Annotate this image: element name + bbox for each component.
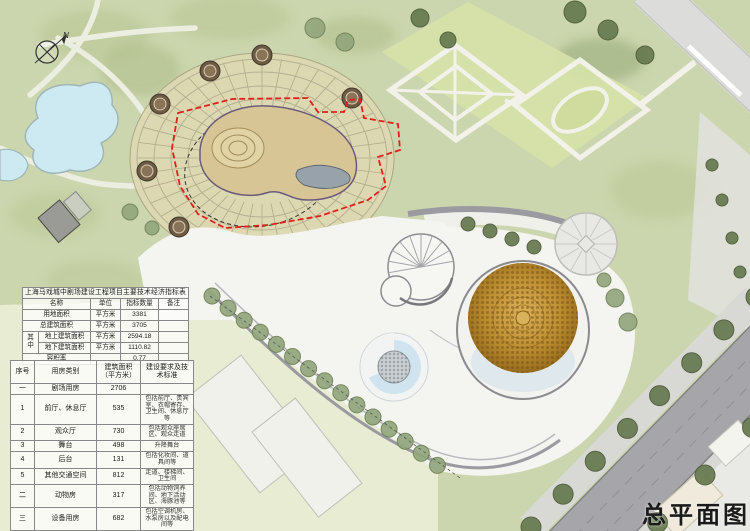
table-cell: 剧场用房 (35, 384, 97, 395)
table-cell: 地上建筑面积 (39, 331, 91, 342)
table-cell: 前厅、休息厅 (35, 395, 97, 425)
tree (145, 221, 159, 235)
tree (365, 409, 381, 425)
table-cell: 3381 (121, 310, 159, 321)
table-cell: 动物房 (35, 484, 97, 507)
table-cell: 平方米 (91, 310, 121, 321)
table-cell: 上海马戏城中剧场建设工程项目主要技术经济指标表 (23, 288, 189, 299)
table-cell: 其中 (23, 331, 39, 353)
tree (336, 33, 354, 51)
tree (305, 18, 325, 38)
tree (236, 312, 252, 328)
table-cell: 总建筑面积 (23, 320, 91, 331)
tree (397, 433, 413, 449)
table-cell: 平方米 (91, 320, 121, 331)
table-cell: 平方米 (91, 342, 121, 353)
table-cell: 2 (11, 424, 35, 440)
tree (714, 320, 734, 340)
tree (734, 266, 746, 278)
tree (706, 159, 718, 171)
tree (411, 9, 429, 27)
plan-title: 总平面图 (642, 495, 750, 530)
rooms-table: 序号用房类别建筑面积（平方米）建设要求及技术标准一剧场用房27061前厅、休息厅… (10, 360, 194, 531)
tree (597, 273, 611, 287)
table-cell: 4 (11, 452, 35, 468)
tree (505, 232, 519, 246)
table-cell: 包括空调机房、水泵房以及配电间等 (141, 508, 194, 531)
indicators-table: 上海马戏城中剧场建设工程项目主要技术经济指标表名称单位指标数量备注用地面积平方米… (22, 287, 189, 365)
tree (606, 289, 624, 307)
table-cell: 备注 (159, 299, 189, 310)
tree (617, 418, 637, 438)
table-cell: 序号 (11, 361, 35, 384)
tree (598, 20, 618, 40)
tree (440, 32, 456, 48)
table-cell (141, 384, 194, 395)
table-cell: 平方米 (91, 331, 121, 342)
table-cell: 535 (97, 395, 141, 425)
table-cell: 升降舞台 (141, 441, 194, 452)
table-cell: 3705 (121, 320, 159, 331)
table-cell: 317 (97, 484, 141, 507)
table-cell: 舞台 (35, 441, 97, 452)
table-cell (159, 342, 189, 353)
table-cell: 单位 (91, 299, 121, 310)
tree (650, 386, 670, 406)
tree (220, 300, 236, 316)
tree (695, 465, 715, 485)
table-cell: 二 (11, 484, 35, 507)
table-cell: 包括动物饲养间、地下活动区、海豚池等 (141, 484, 194, 507)
table-cell: 1 (11, 395, 35, 425)
tree (619, 313, 637, 331)
tree (461, 217, 475, 231)
table-cell: 走道、楼梯间、卫生间 (141, 468, 194, 484)
table-cell: 812 (97, 468, 141, 484)
table-cell: 498 (97, 441, 141, 452)
table-cell: 5 (11, 468, 35, 484)
table-cell: 地下建筑面积 (39, 342, 91, 353)
table-cell: 一 (11, 384, 35, 395)
table-cell: 包括前厅、贵宾室、衣帽寄存、卫生间、休息厅等 (141, 395, 194, 425)
table-cell (159, 331, 189, 342)
tree (585, 451, 605, 471)
table-cell: 730 (97, 424, 141, 440)
table-cell: 2594.18 (121, 331, 159, 342)
tree (527, 240, 541, 254)
compass-north-label: N (63, 31, 69, 40)
tree (716, 194, 728, 206)
table-cell: 指标数量 (121, 299, 159, 310)
tree (564, 1, 586, 23)
tree (553, 484, 573, 504)
table-cell (159, 310, 189, 321)
table-cell: 131 (97, 452, 141, 468)
golden-dome-building (457, 261, 589, 399)
tree (636, 46, 654, 64)
tree (333, 385, 349, 401)
table-cell: 682 (97, 508, 141, 531)
tree (413, 445, 429, 461)
table-cell (159, 320, 189, 331)
dome-oculus (516, 311, 530, 325)
tree (483, 224, 497, 238)
radial-plaza (555, 213, 617, 275)
table-cell: 用地面积 (23, 310, 91, 321)
table-cell: 名称 (23, 299, 91, 310)
geodesic-sphere (360, 333, 428, 401)
tree (204, 288, 220, 304)
table-cell: 建筑面积（平方米） (97, 361, 141, 384)
table-cell: 3 (11, 441, 35, 452)
tree (381, 421, 397, 437)
table-cell: 包括化妆间、道具间等 (141, 452, 194, 468)
tree (301, 361, 317, 377)
site-plan: N (0, 0, 750, 531)
tree (682, 353, 702, 373)
table-cell: 三 (11, 508, 35, 531)
tree (268, 336, 284, 352)
table-cell: 后台 (35, 452, 97, 468)
table-cell: 包括观众座席区、观众走道 (141, 424, 194, 440)
tree (122, 204, 138, 220)
table-cell: 建设要求及技术标准 (141, 361, 194, 384)
tree (726, 232, 738, 244)
table-cell: 2706 (97, 384, 141, 395)
table-cell: 观众厅 (35, 424, 97, 440)
table-cell: 其他交通空间 (35, 468, 97, 484)
table-cell: 用房类别 (35, 361, 97, 384)
table-cell: 设备用房 (35, 508, 97, 531)
table-cell: 1110.82 (121, 342, 159, 353)
